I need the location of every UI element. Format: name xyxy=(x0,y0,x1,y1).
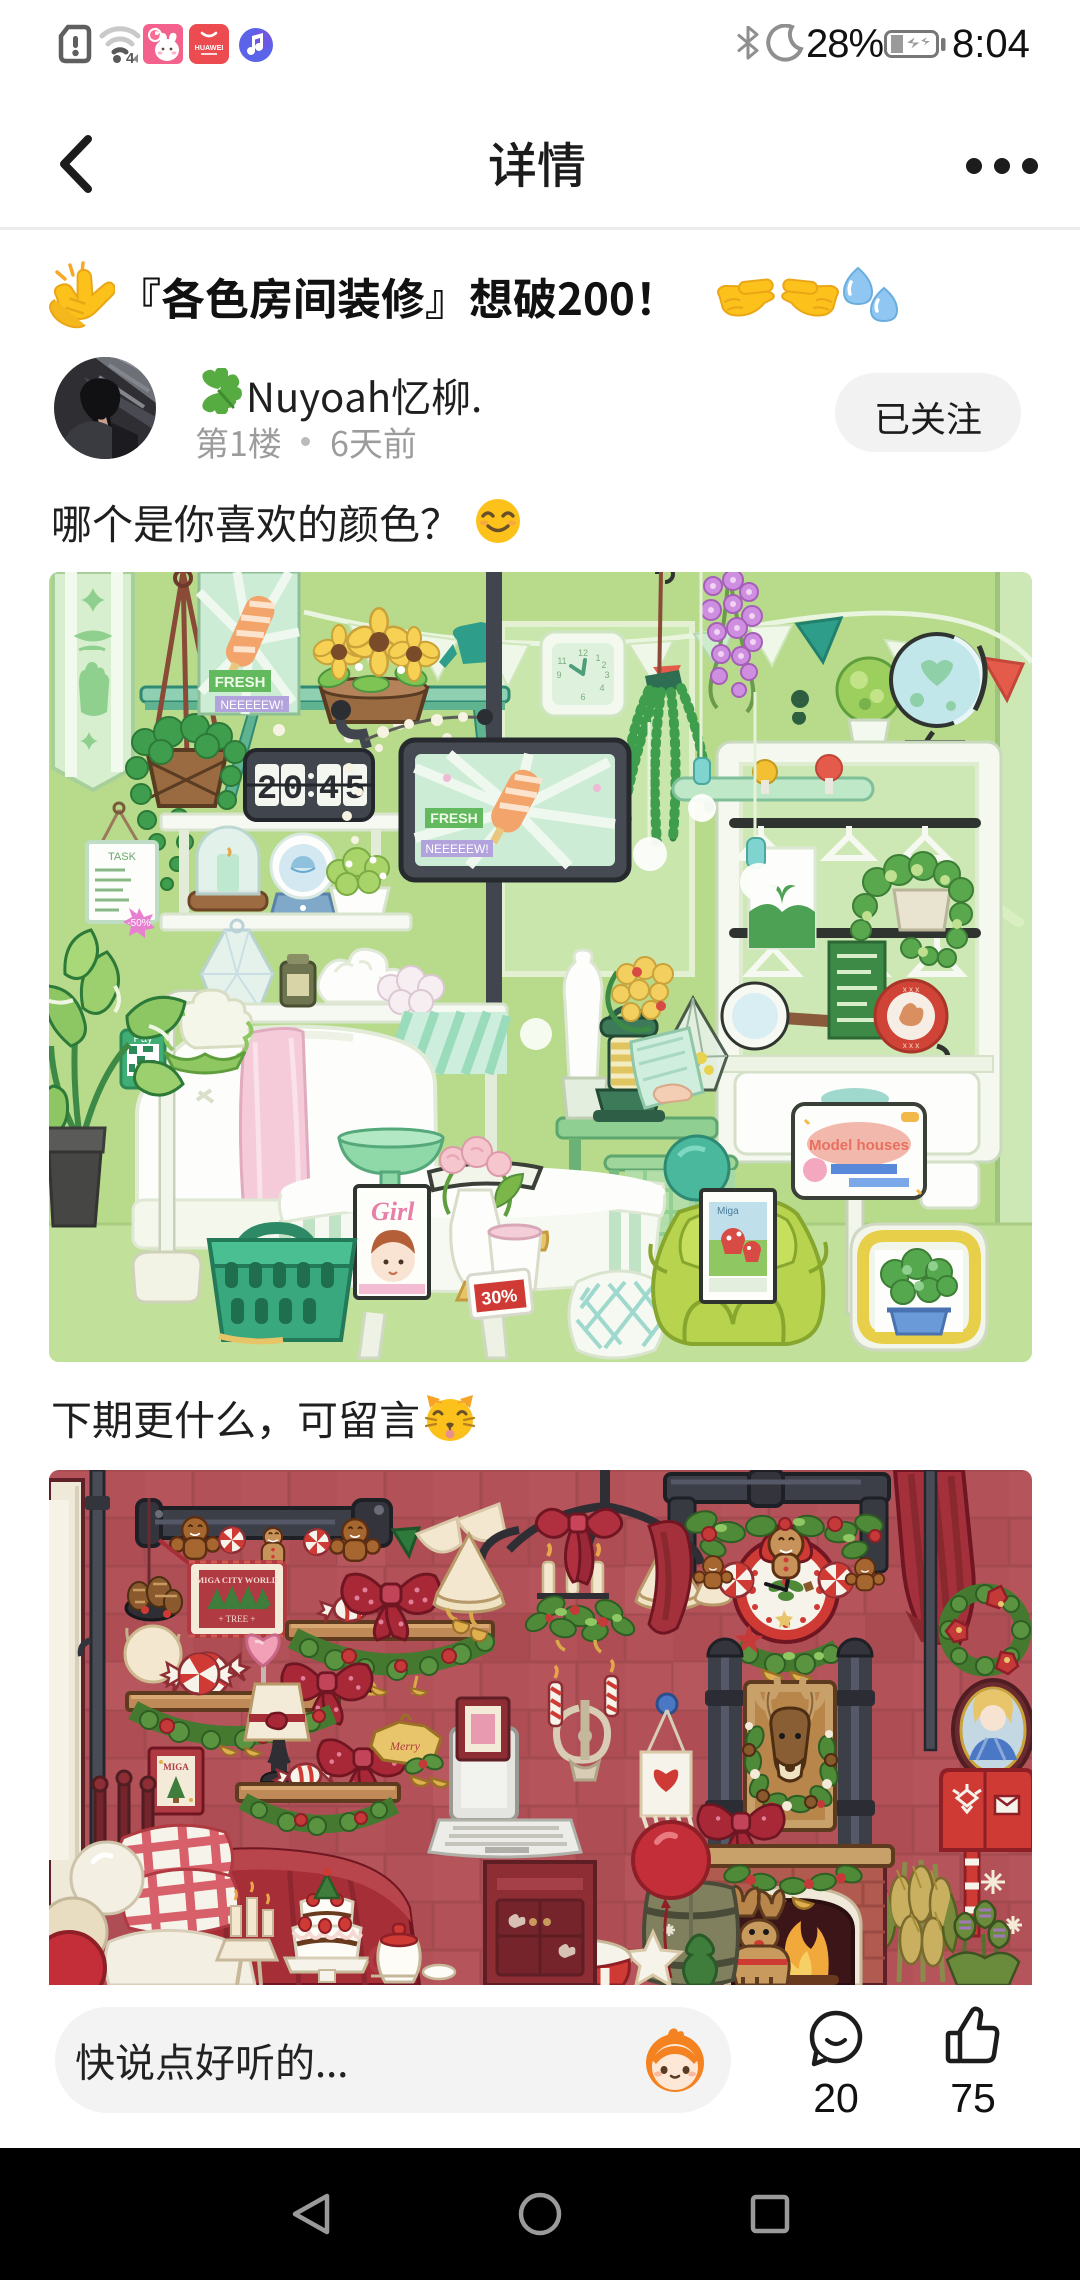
svg-text:FRESH: FRESH xyxy=(430,810,477,826)
svg-text:Merry: Merry xyxy=(389,1739,421,1753)
svg-text:2: 2 xyxy=(257,771,277,809)
svg-text:Model houses: Model houses xyxy=(809,1137,909,1154)
svg-text:0: 0 xyxy=(283,771,303,809)
svg-text:x x x: x x x xyxy=(903,1041,919,1050)
svg-text:1: 1 xyxy=(595,653,600,663)
svg-text:4: 4 xyxy=(126,50,135,64)
svg-text:2: 2 xyxy=(601,660,606,670)
svg-text:MIGA CITY WORLD: MIGA CITY WORLD xyxy=(196,1575,278,1585)
svg-text:FRESH: FRESH xyxy=(215,674,266,691)
svg-text:30%: 30% xyxy=(480,1285,518,1309)
svg-text:NEEEEEW!: NEEEEEW! xyxy=(220,698,283,712)
svg-text:NEEEEEW!: NEEEEEW! xyxy=(425,842,488,856)
svg-text:+ TREE +: + TREE + xyxy=(219,1614,256,1624)
svg-text:-50%: -50% xyxy=(127,918,150,929)
svg-text:MIGA: MIGA xyxy=(163,1762,189,1772)
svg-text:4: 4 xyxy=(599,683,604,693)
svg-text:Girl: Girl xyxy=(371,1197,415,1226)
svg-text:Miga: Miga xyxy=(717,1206,739,1217)
svg-text:6: 6 xyxy=(580,692,585,702)
svg-text:HUAWEI: HUAWEI xyxy=(195,43,224,52)
svg-text:4: 4 xyxy=(319,771,339,809)
svg-text:TASK: TASK xyxy=(108,851,137,863)
svg-text:9: 9 xyxy=(556,670,561,680)
svg-text:x x x: x x x xyxy=(903,985,919,994)
svg-text:3: 3 xyxy=(604,670,609,680)
svg-text:12: 12 xyxy=(578,648,588,658)
svg-text:11: 11 xyxy=(557,656,566,666)
